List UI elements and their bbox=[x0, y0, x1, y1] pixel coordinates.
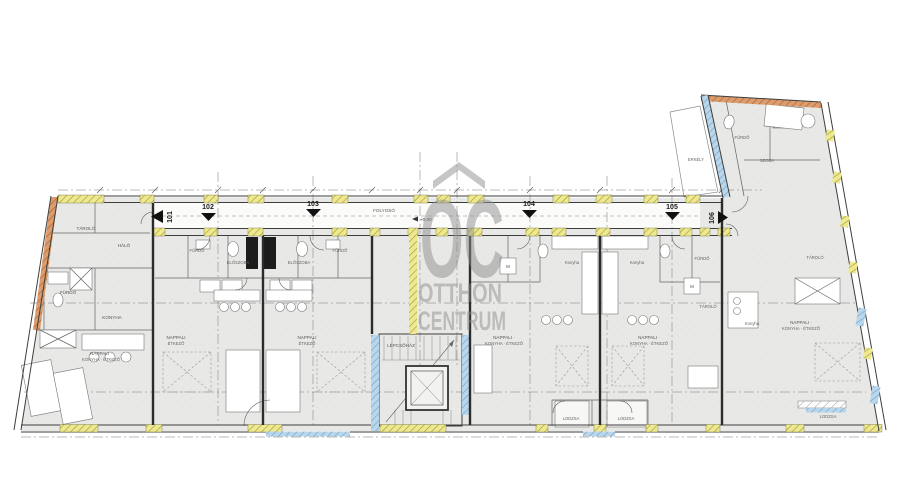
room-label: ÉTKEZŐ bbox=[168, 341, 185, 346]
bottom-blue-strip-a bbox=[266, 432, 350, 437]
sofa-105 bbox=[688, 366, 718, 388]
unit-number: 105 bbox=[666, 204, 678, 211]
watermark-line2: CENTRUM bbox=[418, 306, 506, 336]
room-label: Konyha bbox=[630, 260, 645, 265]
shower-101 bbox=[70, 268, 92, 290]
room-label: FÜRDŐ bbox=[333, 248, 349, 253]
room-label: ELŐSZOBA bbox=[227, 260, 250, 265]
room-label: KONYHA · ÉTKEZŐ bbox=[485, 341, 524, 346]
unit-number: 104 bbox=[523, 201, 535, 208]
loggia-railing-blue bbox=[806, 408, 846, 413]
floor-plan-canvas: 101 102 103 104 105 106 +0.00 TÁROLÓ HÁL… bbox=[0, 0, 919, 500]
room-label: FÜRDŐ bbox=[190, 248, 206, 253]
room-label: M bbox=[506, 264, 510, 269]
room-label: LODZSA bbox=[820, 414, 837, 419]
room-label: FÜRDŐ bbox=[695, 256, 711, 261]
room-label: Konyha bbox=[745, 321, 760, 326]
room-label: ÉTKEZŐ bbox=[299, 341, 316, 346]
loggia-104 bbox=[555, 401, 589, 427]
room-label: Konyha bbox=[565, 260, 580, 265]
toilet-104 bbox=[538, 244, 548, 258]
unit-number: 106 bbox=[709, 212, 716, 224]
unit-number: 101 bbox=[167, 211, 174, 223]
core-blue-wall-west bbox=[371, 335, 379, 431]
room-label: LODZSA bbox=[563, 416, 580, 421]
toilet-101 bbox=[53, 293, 63, 307]
core-yellow-wall bbox=[409, 230, 417, 334]
bed-102 bbox=[226, 350, 260, 412]
wardrobe-106 bbox=[795, 278, 840, 304]
bed-106 bbox=[764, 104, 804, 130]
bed-104 bbox=[474, 345, 492, 393]
elevator bbox=[406, 366, 448, 410]
toilet-105 bbox=[660, 244, 670, 258]
room-label: KONYHA · ÉTKEZŐ bbox=[782, 326, 821, 331]
room-label: LÉPCSŐHÁZ bbox=[387, 342, 415, 348]
unit-number: 102 bbox=[202, 204, 214, 211]
room-label: KONYHA bbox=[102, 315, 122, 320]
toilet-102 bbox=[228, 242, 239, 257]
room-label: NAPPALI · bbox=[790, 320, 812, 325]
room-label: ERKÉLY bbox=[688, 157, 704, 162]
room-label: FÜRDŐ bbox=[60, 289, 77, 295]
room-label: NAPPALI bbox=[297, 335, 316, 340]
wardrobe-101 bbox=[40, 330, 76, 348]
room-label: TÁROLÓ bbox=[699, 304, 717, 309]
room-label: KONYHA · ÉTKEZŐ bbox=[82, 357, 121, 362]
room-label: LODZSA bbox=[618, 416, 635, 421]
room-label: KONYHA · ÉTKEZŐ bbox=[630, 341, 669, 346]
watermark: OC OTTHON CENTRUM bbox=[418, 162, 506, 336]
loggia-105 bbox=[607, 401, 647, 427]
room-label: NAPPALI · bbox=[638, 335, 660, 340]
watermark-line1: OTTHON bbox=[418, 278, 502, 308]
floor-plan-screenshot: 101 102 103 104 105 106 +0.00 TÁROLÓ HÁL… bbox=[0, 0, 919, 500]
bed-103 bbox=[266, 350, 300, 412]
room-label: SZOBA bbox=[760, 158, 774, 163]
room-label: NAPPALI bbox=[166, 335, 185, 340]
room-label: HÁLÓ bbox=[118, 242, 131, 248]
room-label: ELŐSZOBA bbox=[288, 260, 311, 265]
room-label: TÁROLÓ bbox=[77, 225, 96, 231]
toilet-103 bbox=[297, 242, 308, 257]
room-label: FÜRDŐ bbox=[735, 135, 751, 140]
unit-number: 103 bbox=[307, 201, 319, 208]
room-label: FOLYOSÓ bbox=[373, 207, 395, 213]
room-label: TÁROLÓ bbox=[806, 255, 824, 260]
loggia-railing-hatch bbox=[798, 401, 846, 408]
shower-103 bbox=[264, 237, 276, 269]
room-label: NAPPALI · bbox=[90, 351, 112, 356]
bottom-blue-strip-b bbox=[583, 432, 615, 437]
room-label: M bbox=[690, 284, 694, 289]
